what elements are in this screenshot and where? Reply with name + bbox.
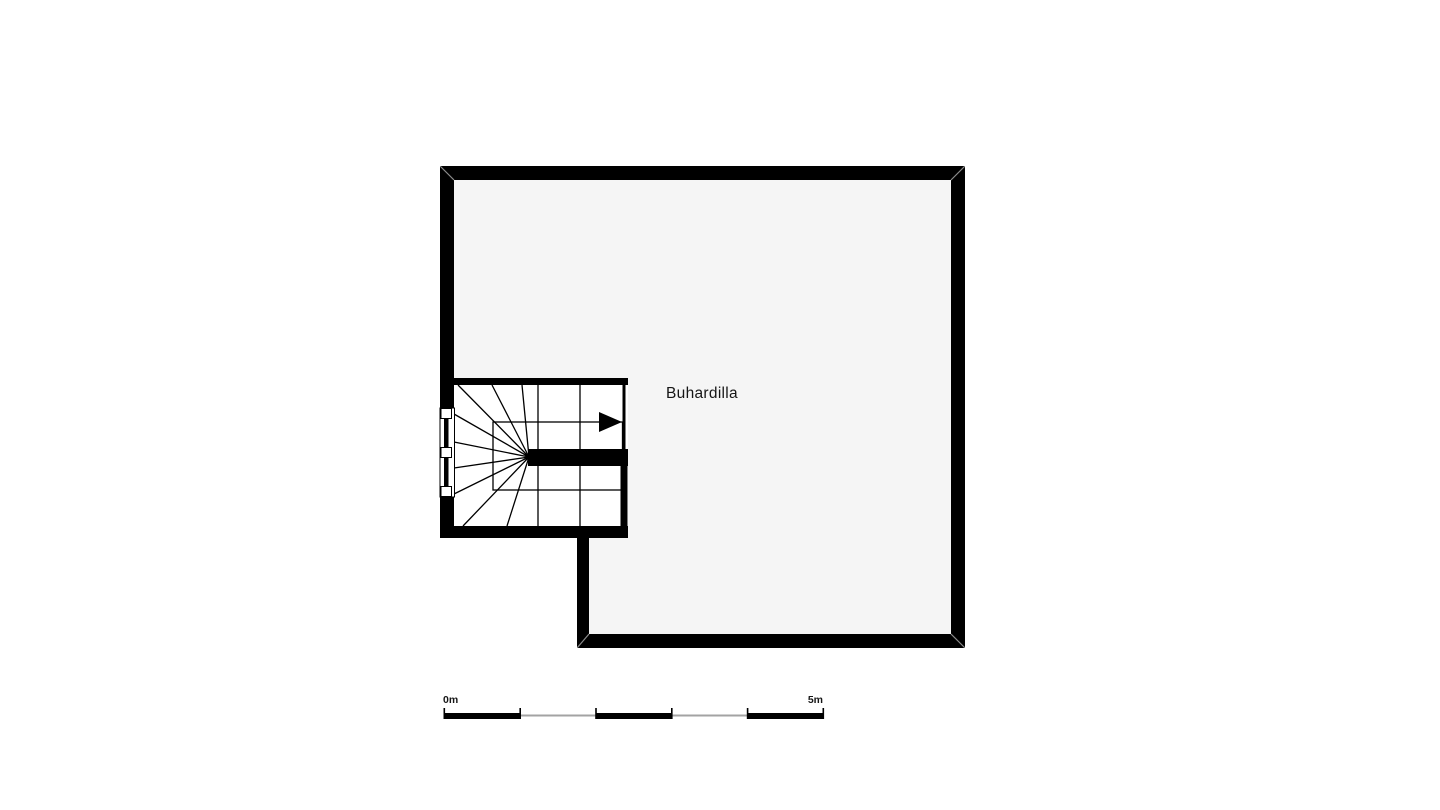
window <box>440 408 455 497</box>
window-frame-bottom <box>441 487 452 497</box>
floorplan-svg <box>0 0 1440 810</box>
scale-start-label: 0m <box>443 695 458 706</box>
upper-left-wall <box>440 166 454 408</box>
floorplan-canvas: Buhardilla 0m 5m <box>0 0 1440 810</box>
stair-right-wall <box>621 466 628 526</box>
window-frame-top <box>441 409 452 419</box>
stair-top-wall <box>440 378 628 385</box>
stair-bottom-wall <box>440 526 628 538</box>
room-label: Buhardilla <box>610 385 794 402</box>
stair-center-stringer <box>528 449 628 466</box>
lower-left-wall <box>577 538 589 648</box>
bottom-wall <box>577 634 965 648</box>
window-frame-middle <box>441 448 452 458</box>
scale-bar-black-segments <box>444 713 823 719</box>
top-wall <box>440 166 965 180</box>
right-wall <box>951 166 965 648</box>
scale-bar <box>444 708 825 719</box>
scale-end-label: 5m <box>763 695 823 706</box>
